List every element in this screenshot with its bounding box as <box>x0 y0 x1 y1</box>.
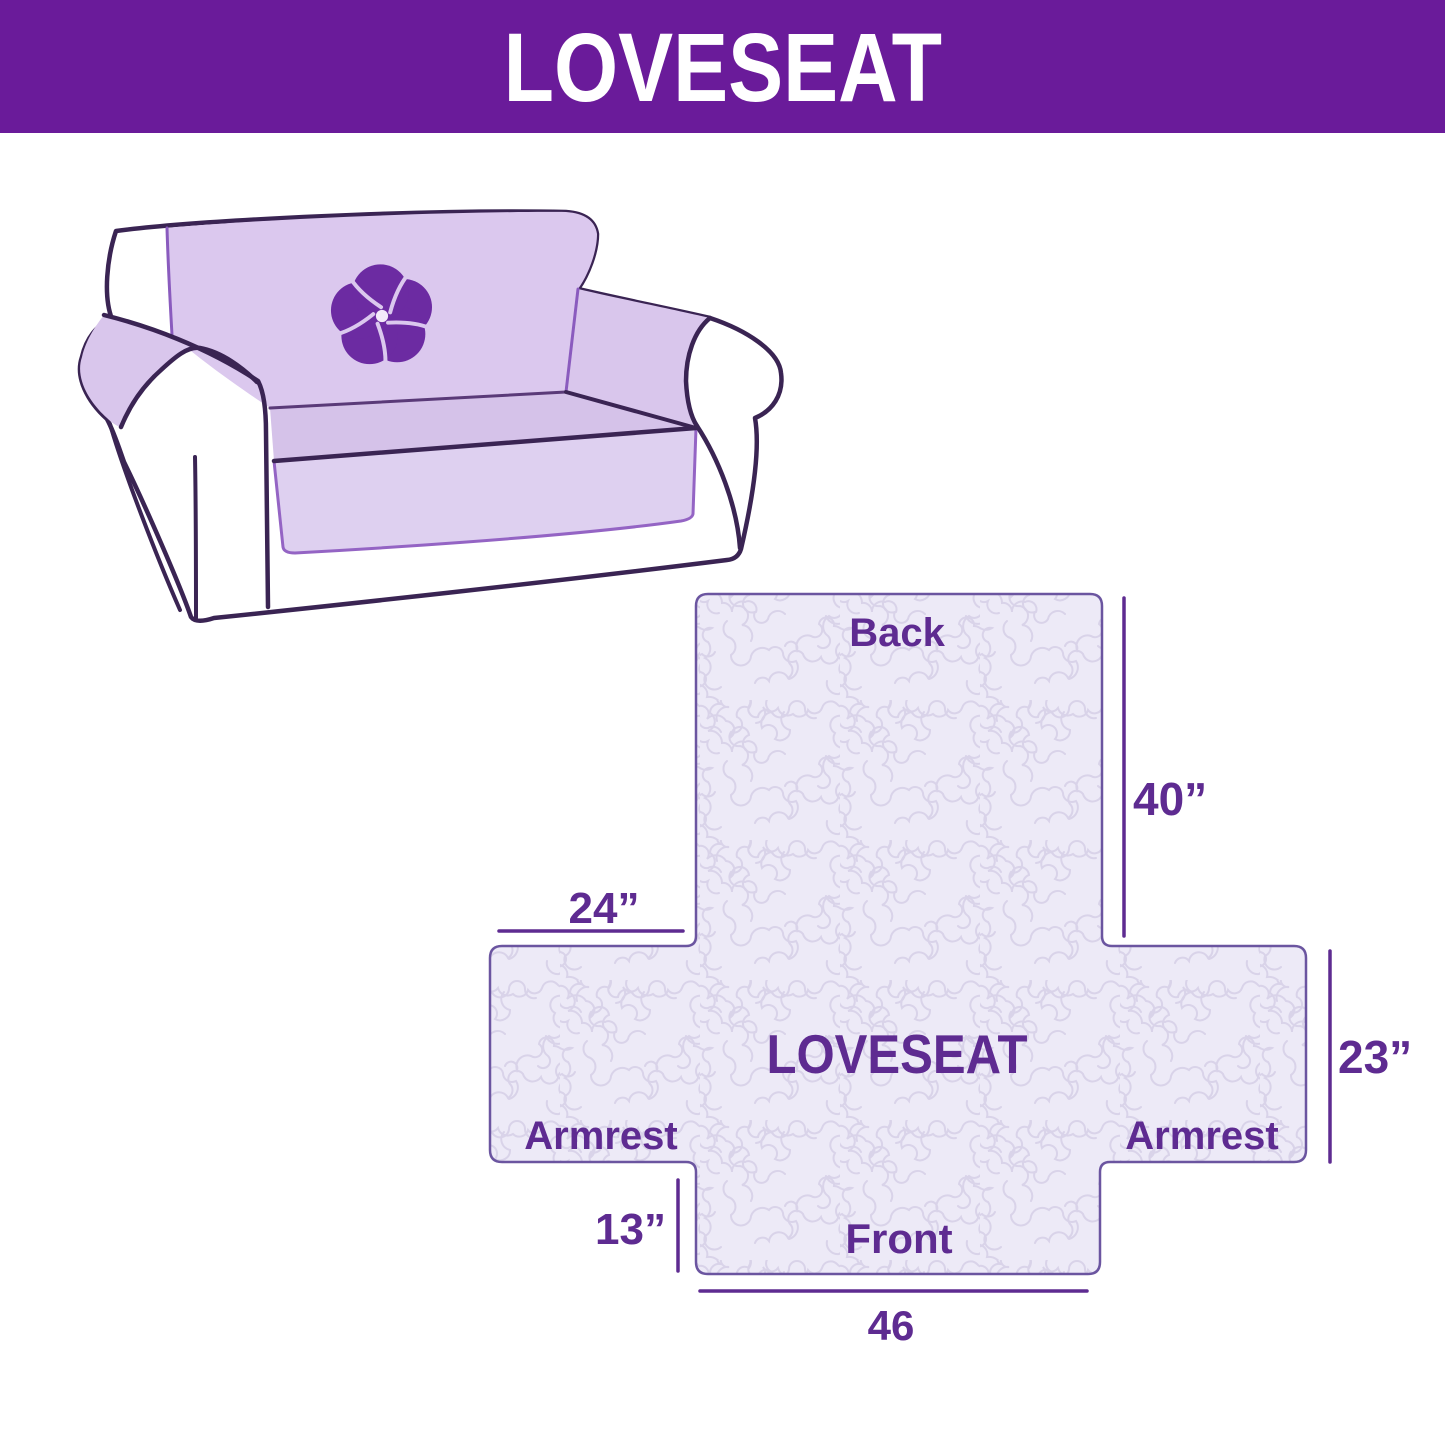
svg-text:Front: Front <box>845 1215 952 1262</box>
svg-text:40”: 40” <box>1133 773 1207 825</box>
svg-text:23”: 23” <box>1338 1031 1412 1083</box>
svg-text:Armrest: Armrest <box>1125 1114 1278 1158</box>
svg-text:Armrest: Armrest <box>524 1114 677 1158</box>
svg-text:24”: 24” <box>569 884 640 933</box>
svg-text:13”: 13” <box>595 1205 666 1254</box>
svg-text:46: 46 <box>868 1302 915 1349</box>
svg-text:Back: Back <box>849 611 945 655</box>
svg-text:LOVESEAT: LOVESEAT <box>767 1023 1028 1085</box>
